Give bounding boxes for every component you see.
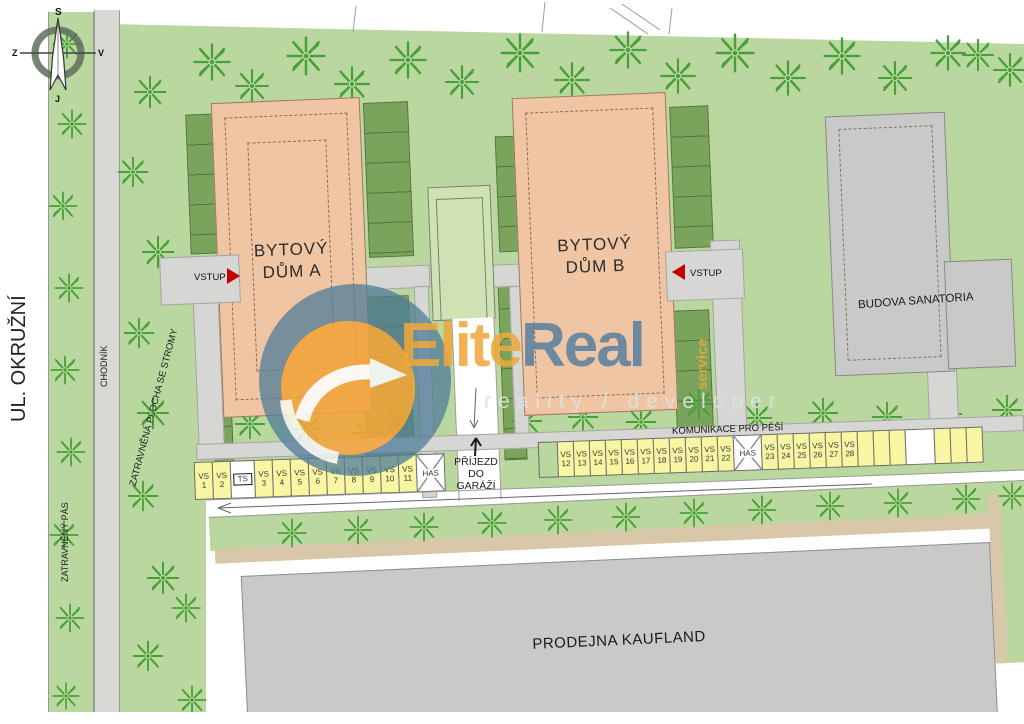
street-label: UL. OKRUŽNÍ [8, 252, 31, 422]
entrance-arrow-b-icon [672, 264, 685, 280]
has-hydrant-space: HAS [733, 434, 763, 471]
compass-icon: S V Z J [12, 5, 104, 103]
compass-s: J [55, 94, 60, 103]
parking-space-blank [965, 427, 983, 464]
garage-ramp [427, 185, 495, 321]
entrance-a-label: VSTUP [194, 272, 226, 283]
parking-space-green [538, 441, 559, 478]
compass-w: Z [12, 48, 18, 58]
kaufland-label: PRODEJNA KAUFLAND [245, 615, 993, 666]
sanatorium [825, 112, 955, 377]
entrance-arrow-a-icon [227, 268, 240, 284]
grass-belt [48, 12, 94, 712]
driveway-label: PŘÍJEZD DO GARÁŽÍ [430, 456, 522, 492]
site-plan: UL. OKRUŽNÍ ZATRAVNĚNÝ PÁS CHODNÍK ZATRA… [0, 0, 1024, 724]
building-b: BYTOVÝ DŮM B [512, 92, 679, 416]
bottom-margin [0, 712, 1024, 724]
compass-n: S [55, 7, 62, 18]
compass-e: V [98, 48, 104, 58]
sidewalk-label: CHODNÍK [99, 335, 109, 387]
building-b-label: BYTOVÝ DŮM B [518, 231, 672, 281]
garage-row [669, 105, 714, 248]
sanatorium-extension [944, 259, 1016, 370]
garage-row [363, 101, 414, 258]
ts-station: TS [230, 460, 256, 499]
grass-belt-label: ZATRAVNĚNÝ PÁS [60, 492, 70, 582]
parking-space-gap [905, 428, 936, 465]
entrance-b-label: VSTUP [690, 268, 722, 279]
